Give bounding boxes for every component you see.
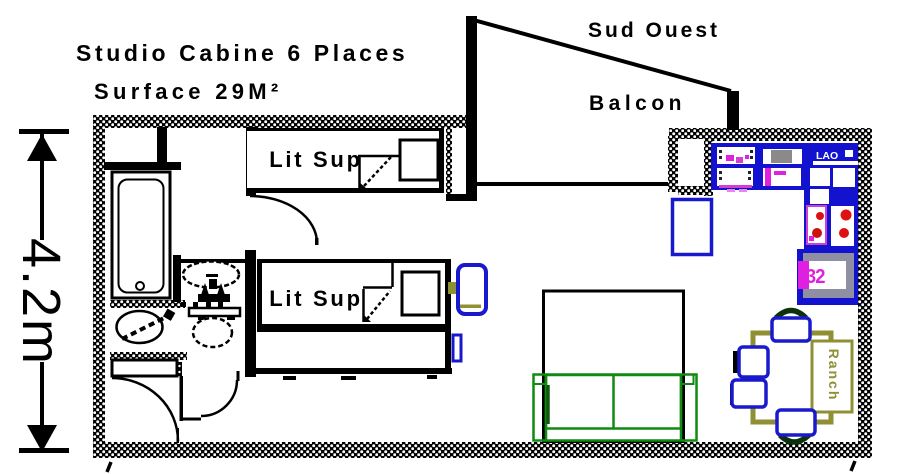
svg-text:Balcon: Balcon: [589, 92, 686, 115]
svg-text:LAO: LAO: [816, 150, 838, 162]
svg-text:Studio Cabine 6 Places: Studio Cabine 6 Places: [76, 40, 408, 66]
svg-text:32: 32: [806, 266, 825, 288]
svg-text:Surface 29M²: Surface 29M²: [94, 79, 283, 104]
svg-text:Sud Ouest: Sud Ouest: [588, 19, 720, 42]
svg-text:Ranch: Ranch: [826, 349, 842, 402]
svg-text:4.2m: 4.2m: [11, 238, 71, 366]
svg-text:Lit Sup: Lit Sup: [269, 147, 362, 172]
svg-text:Lit Sup: Lit Sup: [269, 286, 362, 311]
